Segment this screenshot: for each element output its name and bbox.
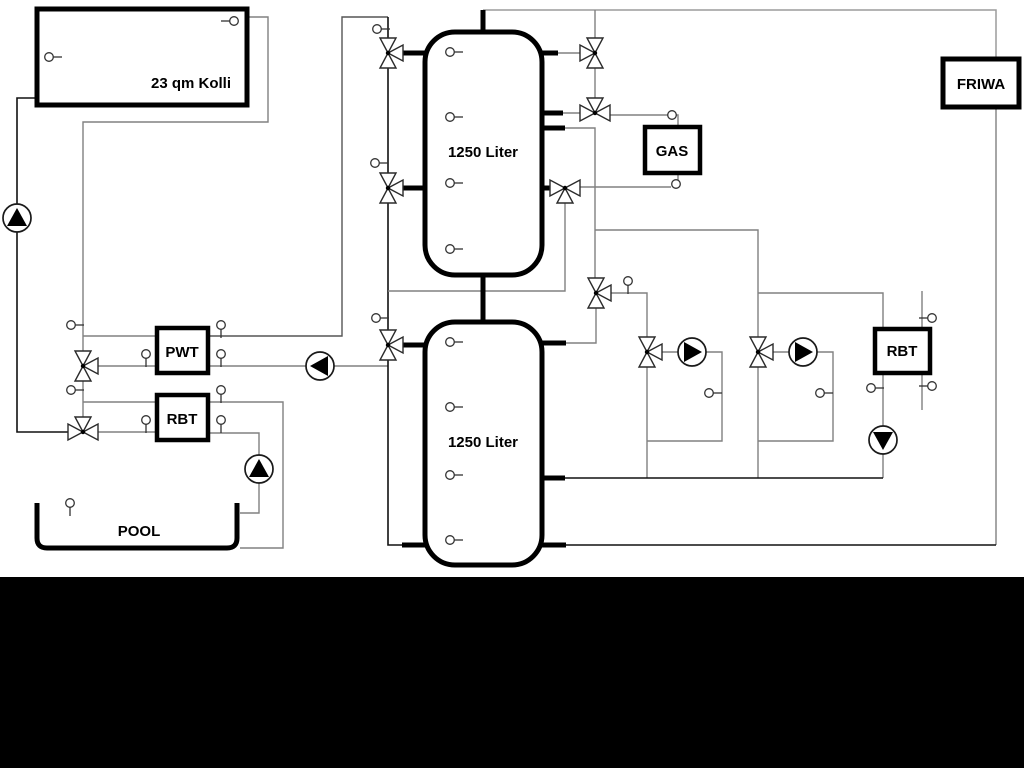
schematic-canvas: 23 qm Kolli 1250 Liter 1250 Liter PWT RB… bbox=[0, 0, 1024, 768]
tank-top-label: 1250 Liter bbox=[448, 144, 518, 161]
heating-pump-2-icon bbox=[789, 338, 817, 366]
gas-label: GAS bbox=[656, 143, 689, 160]
gas-port-sensor-icon bbox=[672, 180, 681, 189]
pwt-label: PWT bbox=[165, 344, 198, 361]
rbt-right-label: RBT bbox=[887, 343, 918, 360]
solar-pump-icon bbox=[3, 204, 31, 232]
rbt-left-label: RBT bbox=[167, 411, 198, 428]
bottom-black-bar bbox=[0, 577, 1024, 768]
pool-pump-icon bbox=[245, 455, 273, 483]
charge-pump-icon bbox=[306, 352, 334, 380]
heating-pump-1-icon bbox=[678, 338, 706, 366]
hydraulic-schematic: 23 qm Kolli 1250 Liter 1250 Liter PWT RB… bbox=[0, 0, 1024, 768]
friwa-label: FRIWA bbox=[957, 76, 1005, 93]
pool-label: POOL bbox=[118, 523, 161, 540]
rbt-pump-icon bbox=[869, 426, 897, 454]
collector-label: 23 qm Kolli bbox=[151, 75, 231, 92]
gas-port-sensor-icon bbox=[668, 111, 677, 120]
tank-bottom-label: 1250 Liter bbox=[448, 434, 518, 451]
